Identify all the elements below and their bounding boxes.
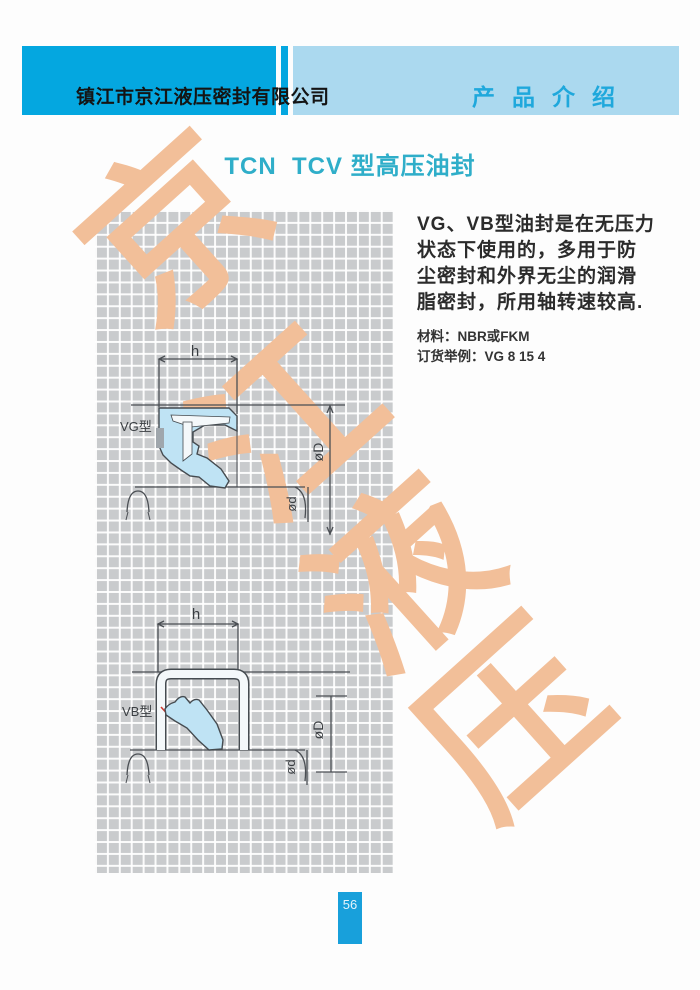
product-description: VG、VB型油封是在无压力 状态下使用的，多用于防 尘密封和外界无尘的润滑 脂密… [417, 212, 679, 367]
dim-width-label: h [192, 606, 200, 623]
vb-seal-diagram: h VB型 øD ød [95, 600, 395, 840]
watermark-char: 压 [374, 581, 656, 863]
company-name: 镇江市京江液压密封有限公司 [76, 82, 330, 109]
description-line: VG、VB型油封是在无压力 [417, 212, 679, 238]
dim-outer-label: øD [310, 721, 326, 740]
page-number-badge: 56 [338, 892, 362, 944]
description-line: 尘密封和外界无尘的润滑 [417, 264, 679, 290]
catalog-page: 镇江市京江液压密封有限公司 产品介绍 TCN TCV 型高压油封 京 江 液 压 [0, 0, 700, 990]
vg-seal-diagram: h VG型 øD ød [95, 330, 395, 570]
order-example-note: 订货举例：VG 8 15 4 [417, 347, 679, 367]
section-label: 产品介绍 [472, 78, 632, 112]
dim-outer-label: øD [310, 443, 326, 462]
dim-inner-label: ød [284, 496, 299, 511]
page-number: 56 [338, 892, 362, 912]
material-note: 材料：NBR或FKM [417, 327, 679, 347]
dim-inner-label: ød [283, 759, 298, 774]
page-title: TCN TCV 型高压油封 [0, 146, 700, 181]
vb-seal-body [165, 697, 223, 750]
diagram-type-label: VB型 [122, 704, 152, 719]
dim-width-label: h [191, 343, 199, 360]
description-line: 状态下使用的，多用于防 [417, 238, 679, 264]
diagram-type-label: VG型 [120, 419, 152, 434]
description-line: 脂密封，所用轴转速较高. [417, 290, 679, 316]
